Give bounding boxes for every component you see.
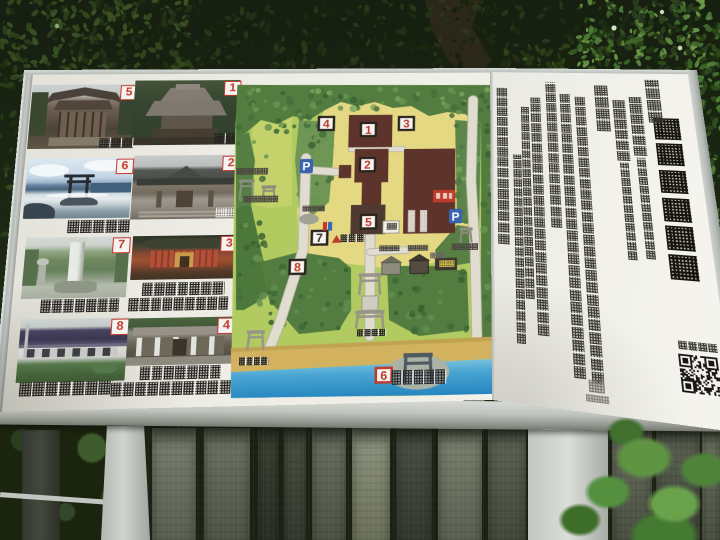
svg-text:4: 4 (323, 118, 331, 130)
svg-text:5: 5 (365, 216, 373, 229)
svg-text:2: 2 (364, 159, 371, 172)
svg-text:8: 8 (294, 261, 302, 274)
svg-text:P: P (302, 161, 311, 174)
svg-text:P: P (452, 211, 460, 224)
svg-text:3: 3 (403, 118, 410, 130)
svg-text:6: 6 (380, 369, 388, 383)
svg-text:7: 7 (316, 232, 323, 245)
svg-text:1: 1 (365, 124, 372, 136)
